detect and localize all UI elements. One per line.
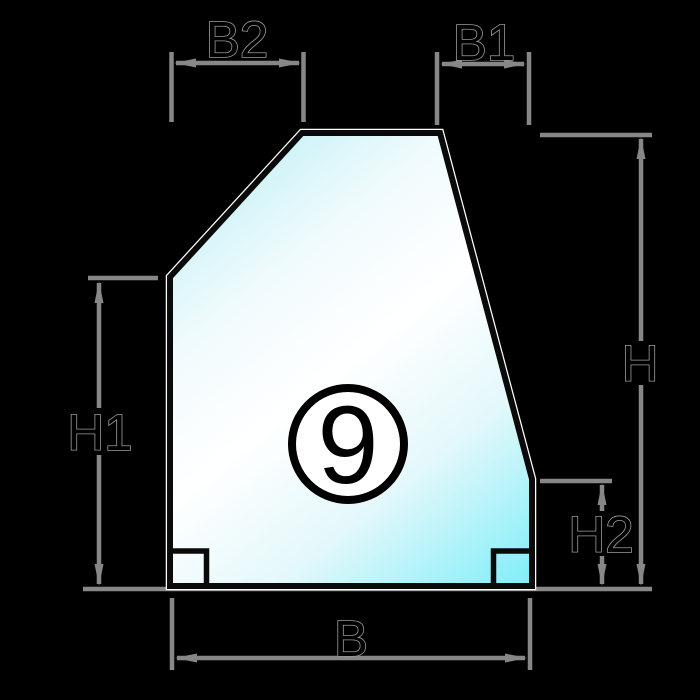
b-label: B (334, 610, 368, 667)
h2-arrow-down (598, 564, 607, 586)
glass-shape-diagram: 9 B2 B1 H H2 (0, 0, 700, 700)
dimension-B2: B2 (172, 11, 304, 122)
b2-label: B2 (206, 11, 268, 68)
dimension-B1: B1 (437, 14, 529, 125)
dimension-B: B (172, 598, 530, 670)
shape-number-badge: 9 (292, 384, 404, 507)
h1-arrow-up (95, 281, 104, 303)
b2-arrow-left (174, 59, 196, 68)
h-arrow-down (637, 564, 646, 586)
b-arrow-left (175, 654, 197, 663)
b1-label: B1 (453, 14, 515, 71)
b-arrow-right (505, 654, 527, 663)
dimension-H2: H2 (540, 481, 634, 586)
h1-arrow-down (95, 564, 104, 586)
h-label: H (622, 335, 659, 392)
b2-arrow-right (279, 59, 301, 68)
glass-polygon (170, 133, 532, 586)
h2-label: H2 (568, 506, 633, 563)
h-arrow-up (637, 137, 646, 159)
badge-number: 9 (317, 384, 378, 507)
h1-label: H1 (67, 404, 132, 461)
h2-arrow-up (598, 483, 607, 505)
glass-pane (170, 133, 532, 586)
dimension-H1: H1 (67, 278, 158, 586)
